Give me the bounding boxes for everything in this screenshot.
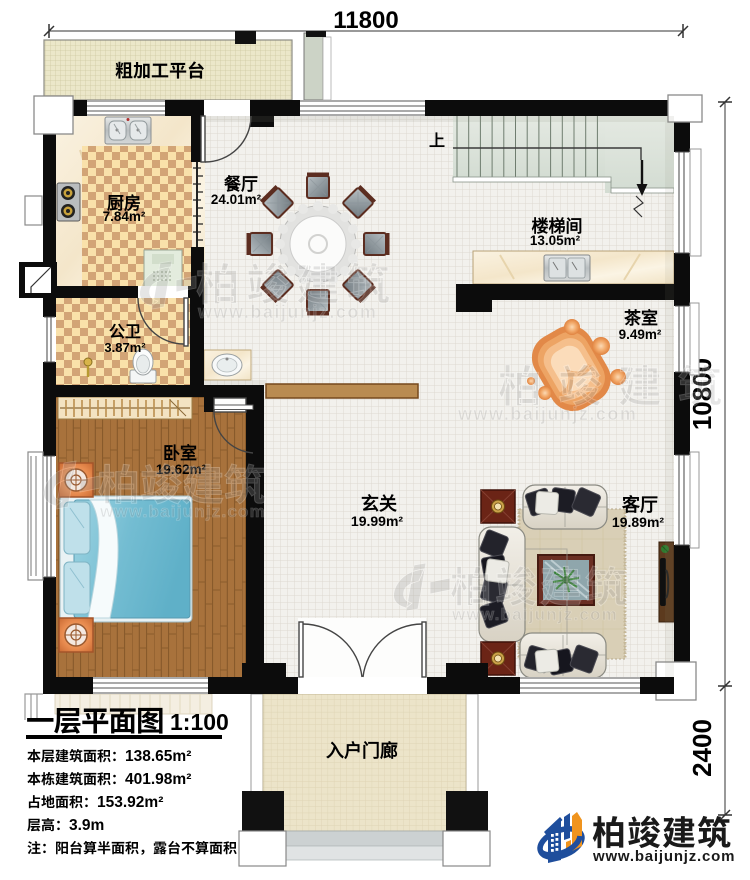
svg-text:11800: 11800 — [333, 7, 398, 34]
svg-text:粗加工平台: 粗加工平台 — [115, 57, 205, 83]
svg-text:餐厅: 餐厅 — [224, 174, 258, 194]
svg-text:www.baijunjz.com: www.baijunjz.com — [457, 404, 637, 424]
svg-text:本层建筑面积：138.65m²: 本层建筑面积：138.65m² — [27, 746, 191, 766]
svg-text:客厅: 客厅 — [622, 494, 658, 515]
svg-text:www.baijunjz.com: www.baijunjz.com — [99, 502, 266, 521]
svg-text:茶室: 茶室 — [624, 308, 658, 328]
svg-text:www.baijunjz.com: www.baijunjz.com — [451, 605, 618, 624]
svg-text:本栋建筑面积：401.98m²: 本栋建筑面积：401.98m² — [27, 769, 191, 789]
svg-text:层高：3.9m: 层高：3.9m — [27, 815, 104, 835]
svg-text:上: 上 — [429, 132, 445, 150]
svg-text:9.49m²: 9.49m² — [619, 327, 662, 342]
svg-text:占地面积：153.92m²: 占地面积：153.92m² — [27, 792, 163, 812]
svg-text:www.baijunjz.com: www.baijunjz.com — [592, 848, 735, 865]
svg-text:入户门廊: 入户门廊 — [326, 740, 398, 761]
svg-text:2400: 2400 — [687, 719, 717, 777]
svg-text:注：阳台算半面积，露台不算面积: 注：阳台算半面积，露台不算面积 — [27, 838, 237, 858]
svg-text:1:100: 1:100 — [170, 709, 229, 735]
svg-text:www.baijunjz.com: www.baijunjz.com — [197, 302, 377, 322]
svg-text:玄关: 玄关 — [361, 493, 397, 514]
svg-text:公卫: 公卫 — [109, 323, 141, 341]
svg-text:13.05m²: 13.05m² — [530, 233, 581, 248]
svg-text:3.87m²: 3.87m² — [104, 340, 146, 355]
svg-text:一层平面图: 一层平面图 — [26, 699, 164, 740]
svg-text:7.84m²: 7.84m² — [103, 209, 146, 224]
svg-text:19.89m²: 19.89m² — [612, 514, 664, 530]
svg-text:24.01m²: 24.01m² — [211, 192, 262, 207]
svg-text:19.99m²: 19.99m² — [351, 513, 403, 529]
